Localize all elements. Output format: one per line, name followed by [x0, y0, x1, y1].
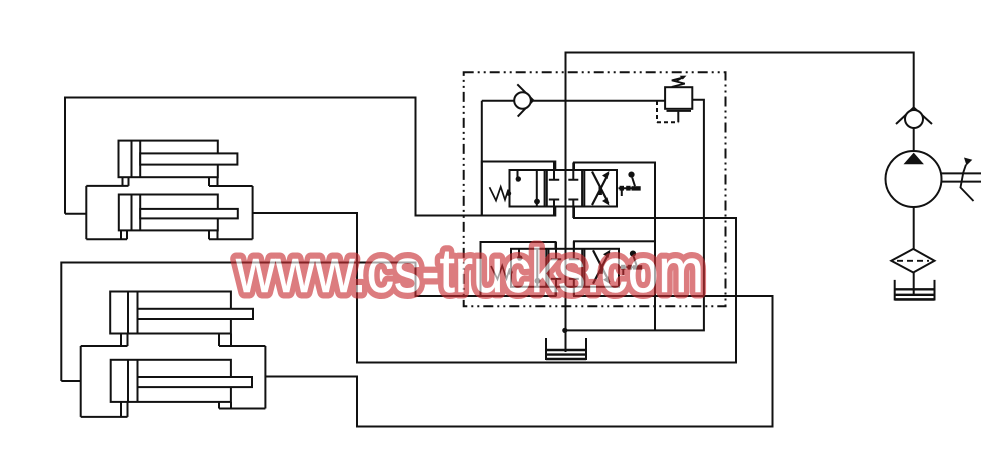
svg-text:www.cs-trucks.com: www.cs-trucks.com: [235, 237, 704, 306]
